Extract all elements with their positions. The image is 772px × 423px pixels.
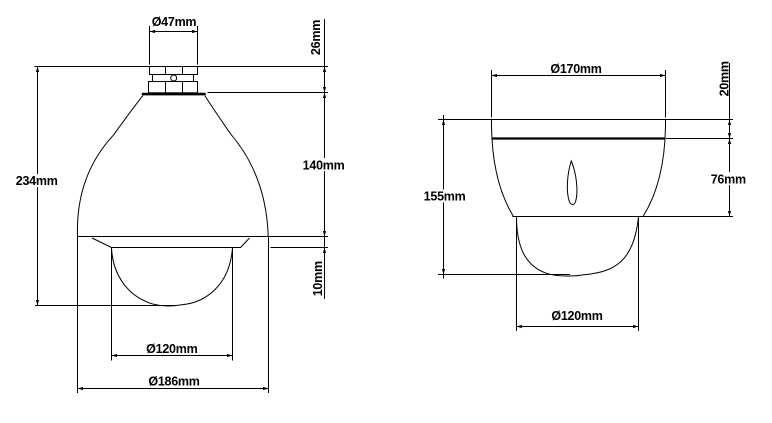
svg-text:10mm: 10mm [311, 261, 325, 296]
svg-text:155mm: 155mm [424, 190, 466, 204]
svg-text:Ø120mm: Ø120mm [146, 342, 197, 356]
svg-text:234mm: 234mm [16, 174, 58, 188]
svg-text:76mm: 76mm [711, 173, 746, 187]
svg-text:26mm: 26mm [309, 20, 323, 55]
svg-text:Ø170mm: Ø170mm [550, 62, 601, 76]
svg-text:Ø186mm: Ø186mm [148, 374, 199, 388]
svg-text:Ø120mm: Ø120mm [551, 309, 602, 323]
svg-text:20mm: 20mm [718, 61, 732, 96]
svg-text:Ø47mm: Ø47mm [152, 15, 197, 29]
svg-text:140mm: 140mm [303, 159, 345, 173]
